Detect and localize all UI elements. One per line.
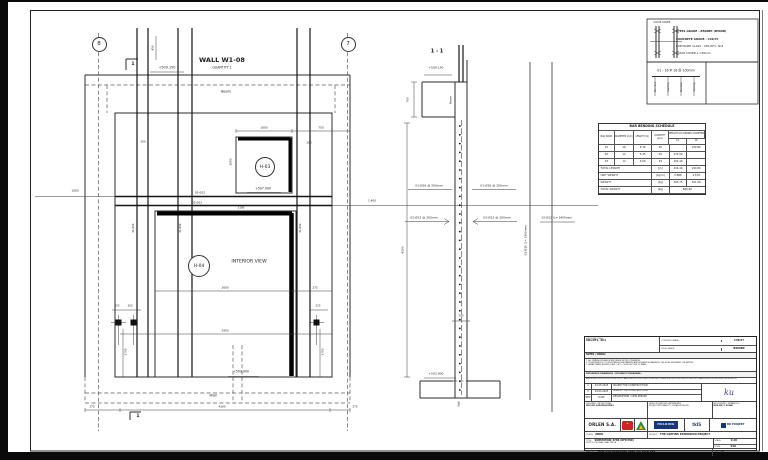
callout-text: 01 - 16 # 16 @ 100mm	[657, 69, 695, 72]
scale-label: SCALE:	[714, 440, 731, 442]
dim-label: 2600	[221, 287, 228, 290]
level-label: +509.150	[429, 67, 444, 70]
bbs-cell-quantity: 29	[652, 159, 670, 166]
bbs-footer-value12: 385.75	[670, 180, 688, 187]
drawing-viewer: 8 7 H-03 H-04 STEEL GRADE - B500BP (B500…	[0, 0, 768, 460]
bbs-footer-value16: 301.08	[687, 180, 705, 187]
rebar-label: 03-Ø12 @ 200mm	[483, 216, 511, 219]
dim-label: 275	[89, 406, 94, 409]
bbs-cell-mark: 02	[599, 152, 615, 159]
designed-value: MGR INŻ. RADOSŁAW BERG	[586, 405, 646, 407]
bbs-cell-weight16	[687, 152, 705, 159]
rebar-label: 01-Ø16 @ 200mm	[480, 184, 508, 187]
dim-label: 4500	[402, 246, 405, 253]
bbs-footer-unit: [kg]	[652, 180, 670, 187]
interior-view-label: INTERIOR VIEW	[231, 261, 266, 266]
project-value: THE OLEFINS EXPANSION PROJECT	[660, 434, 710, 437]
dim-label: 1750	[125, 348, 128, 355]
bbs-total-unit: [kg]	[652, 187, 670, 194]
bbs-footer-value16: 1.578	[687, 173, 705, 180]
dwg-number-label: DWG NO:	[586, 451, 595, 453]
reference-drawings-list: ABRE-SUB-Z0132/S20-3280-CIV-DWG-R01-1 AB…	[585, 378, 756, 383]
callout-tick-label: Quantity	[668, 82, 670, 91]
level-label: +509.150	[159, 66, 176, 69]
bbs-cell-length: 5.60	[634, 159, 652, 166]
exposure-class-value: XD1/XF1, XC4	[586, 340, 658, 343]
dim-label: 300	[128, 306, 133, 309]
dim-label: 275	[352, 406, 357, 409]
dim-label: 1600	[71, 190, 78, 193]
dim-label: 2950	[221, 330, 228, 333]
client-value: ABKK	[595, 434, 603, 437]
rebar-label: 01-Ø16 @ 200mm	[415, 184, 443, 187]
bbs-cell-quantity: 36	[652, 145, 670, 152]
level-label: +503.900	[233, 370, 249, 373]
rev-header-desc: DESCRIPTION / OPIS ZMIANY	[612, 395, 701, 401]
rev-0-desc: ISSUED FOR CONSTRUCTION	[612, 390, 701, 395]
bbs-footer-unit: [m]	[652, 166, 670, 173]
bbs-cell-mark: 01	[599, 145, 615, 152]
office-line-2: PROJEKT WYKONAWCZY / DETAILED DESIGN	[649, 405, 710, 407]
bbs-row: 03125.6029162.40	[599, 159, 705, 166]
sheet-rev-label: REV:	[714, 451, 718, 453]
dim-label: 450	[152, 45, 155, 50]
view-title: WALL W1-08	[199, 57, 245, 64]
bbs-footer-value16: 190.80	[687, 166, 705, 173]
bbs-cell-length: 5.30	[634, 145, 652, 152]
rev-header-date: DATE	[592, 395, 612, 401]
level-label: +507.000	[255, 187, 271, 190]
clear-cover-label: CLEAR COVER	[654, 22, 671, 24]
bbs-cell-weight12: 272.00	[670, 152, 688, 159]
bk-projekt-logo: BK PROJEKT	[721, 423, 745, 428]
company-name: ORLEN S.A.	[585, 419, 621, 431]
rev-0-number: 0	[585, 390, 592, 395]
bbs-cell-length: 5.45	[634, 152, 652, 159]
dim-label: 200	[140, 141, 145, 144]
bbs-cell-weight12: 162.40	[670, 159, 688, 166]
dim-label: 4300	[218, 406, 225, 409]
client-label: CLIENT:	[586, 434, 593, 436]
section-title: 1 - 1	[431, 50, 444, 55]
view-quantity: QUANTITY 1	[212, 66, 231, 69]
bbs-cell-diameter: 16	[615, 145, 635, 152]
bbs-footer-label: UNIT WEIGHT	[599, 173, 652, 180]
dim-label: 275	[312, 287, 317, 290]
bbs-footer-row: TOTAL LENGTH[m]434.40190.80	[599, 166, 705, 173]
bar-callout: 01-Ø16	[180, 224, 182, 233]
bbs-row: 02125.4550272.00	[599, 152, 705, 159]
wall-label: Wall	[209, 394, 216, 397]
title-block: EXPOSURE CLASS: XD1/XF1, XC4 CONCRETE GR…	[584, 336, 757, 451]
bbs-header-quantity: QUANTITY (pcs)	[652, 131, 670, 145]
dim-label: 1600	[260, 127, 267, 130]
rebar-label: 02-Ø12	[192, 201, 202, 204]
orlen-logo: ⌃	[622, 421, 633, 430]
bbs-cell-mark: 03	[599, 159, 615, 166]
rebar-label: 02-Ø12 @ 200mm	[410, 216, 438, 219]
bbs-row: 01165.3036190.80	[599, 145, 705, 152]
callout-tick-label: Bar mark	[655, 82, 657, 92]
bbs-total-row: TOTAL WEIGHT[kg]686.80	[599, 187, 705, 194]
form-value: 610	[731, 446, 736, 448]
notes-header: NOTES / UWAGI:	[585, 353, 756, 358]
bbs-total-label: TOTAL WEIGHT	[599, 187, 652, 194]
bbs-footer-value12: 434.40	[670, 166, 688, 173]
bbs-footer-row: UNIT WEIGHT[kg/m]0.8881.578	[599, 173, 705, 180]
bbs-footer-label: TOTAL LENGTH	[599, 166, 652, 173]
bbs-cell-weight16	[687, 159, 705, 166]
section-marker-top: 1	[131, 63, 134, 68]
bbs-header-length: LENGTH (m)	[634, 131, 652, 145]
level-label: +503.900	[429, 373, 444, 376]
bbs-header-mark: BAR MARK	[599, 131, 615, 145]
dwg-number-value: ABRE-SUB-Z0132/S20-3280-CIV-DWG-R01	[597, 451, 655, 454]
steel-grade-label: STEEL GRADE:	[660, 348, 721, 350]
bbs-header-diameter: DIAMETER (mm)	[615, 131, 634, 145]
rebar-label: 02-Ø12	[195, 192, 205, 195]
section-marker-bottom: 1	[136, 415, 139, 420]
dim-label: 1.400	[368, 200, 376, 203]
concrete-grade-value: C30/37	[721, 340, 756, 343]
bar-length-label: 02-Ø12 (L= 5450mm)	[542, 217, 573, 220]
beam-label: Beam	[221, 90, 231, 93]
bbs-footer-label: WEIGHT	[599, 180, 652, 187]
rev-1-number: 1	[585, 384, 592, 389]
authorized-value: MGR INŻ. P. KOWAL	[714, 405, 755, 407]
rev-1-desc: ISSUED FOR CONSTRUCTION	[612, 384, 701, 389]
rev-0-date: 24.04.2023	[592, 390, 612, 395]
dim-label: 700	[407, 97, 410, 102]
bbs-cell-weight12	[670, 145, 688, 152]
note-3: 3. REBAR GRADE B500BP CLASS C ACC. CROSS…	[586, 364, 755, 366]
bbs-cell-weight16: 190.80	[687, 145, 705, 152]
dim-label: 1750	[322, 348, 325, 355]
dim-label: 225	[115, 306, 120, 309]
slab-label: Slab	[459, 401, 462, 407]
rev-1-date: 24.05.2023	[592, 384, 612, 389]
tkis-logo: tkIS	[692, 423, 701, 428]
concrete-grade-label: CONCRETE GRADE:	[660, 340, 721, 342]
dim-label: 1600	[230, 158, 233, 165]
bar-callout: 01-Ø16	[133, 224, 135, 233]
reference-drawings-header: REFERENCE DRAWINGS / RYSUNKI POWIĄZANE:	[585, 372, 756, 377]
dim-label: 750	[318, 127, 323, 130]
beam-label: Beam	[450, 96, 453, 104]
bar-bending-schedule: BAR BENDING SCHEDULE BAR MARK DIAMETER (…	[598, 123, 706, 195]
callout-tick-label: Spacing	[694, 83, 696, 92]
bbs-title: BAR BENDING SCHEDULE	[599, 124, 705, 131]
dim-label: 250	[459, 316, 464, 319]
dim-label: 200	[306, 142, 311, 145]
bbs-cell-quantity: 50	[652, 152, 670, 159]
triangle-logo	[636, 421, 646, 430]
form-label: FORM:	[714, 446, 731, 448]
bbs-cell-diameter: 12	[615, 159, 635, 166]
dim-label: 2100	[238, 208, 245, 211]
bar-length-label: 01-Ø16 (L= 5300mm)	[525, 225, 528, 256]
drawing-title-line2: FIRST FLOOR SLAB - WALL W1-08	[586, 442, 712, 444]
bar-callout: 01-Ø16	[300, 224, 302, 233]
bbs-footer-row: WEIGHT[kg]385.75301.08	[599, 180, 705, 187]
steel-grade-value: B500BP	[721, 348, 756, 351]
callout-tick-label: Diameter	[681, 82, 683, 92]
bbs-footer-unit: [kg/m]	[652, 173, 670, 180]
bbs-header-weight-group: WEIGHT ACCORDING DIAMETER	[669, 131, 705, 139]
bbs-footer-value12: 0.888	[670, 173, 688, 180]
bbs-cell-diameter: 12	[615, 152, 635, 159]
project-label: PROJECT:	[649, 434, 658, 436]
sheet-rev-value: 01	[721, 451, 725, 454]
approval-signature: ku	[724, 388, 734, 397]
scale-value: 1:20	[731, 440, 737, 443]
dim-label: 225	[316, 306, 321, 309]
holding-logo: HOLDING	[654, 421, 677, 428]
rev-header-rev: REV	[585, 395, 592, 401]
bbs-total-value: 686.80	[670, 187, 705, 194]
